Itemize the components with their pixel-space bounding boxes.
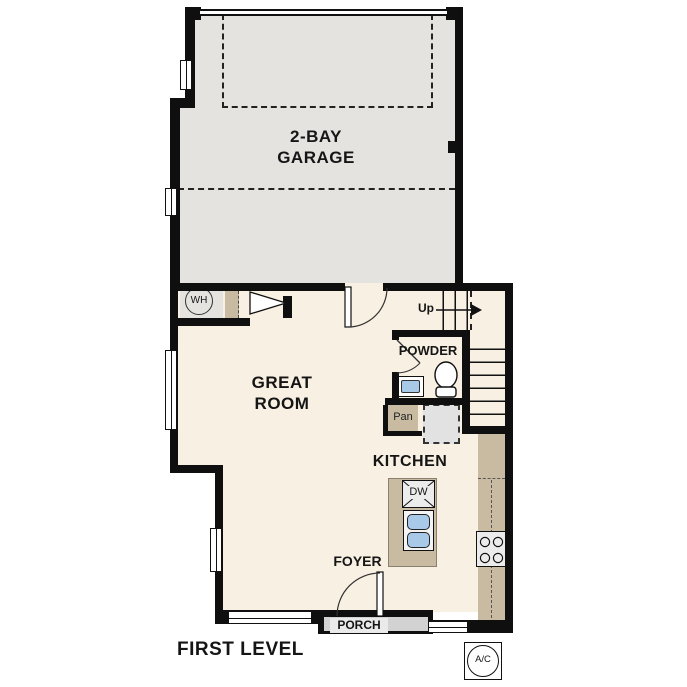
garage-doorway-floor <box>345 283 383 291</box>
wall-closet-bottom <box>170 318 250 326</box>
island-sink-bowl-1 <box>407 514 430 530</box>
water-heater-label: WH <box>185 295 213 307</box>
wall-divider-right <box>383 283 513 291</box>
pantry-label: Pan <box>388 411 418 424</box>
foyer-label: FOYER <box>320 553 395 570</box>
page-title: FIRST LEVEL <box>177 638 397 661</box>
powder-sink-basin <box>401 380 420 393</box>
garage-label: 2-BAY GARAGE <box>246 127 386 168</box>
garage-dashed-line <box>178 188 455 190</box>
stairs-dashed-line <box>470 291 472 330</box>
stairs-up-label: Up <box>414 301 438 316</box>
wall-powder-bottom <box>385 398 470 405</box>
great-room-label-line2: ROOM <box>222 394 342 415</box>
powder-label: POWDER <box>392 343 464 359</box>
great-room-label-line1: GREAT <box>222 373 342 394</box>
kitchen-foyer-floor <box>223 465 505 612</box>
wall-pantry-bottom <box>383 431 422 436</box>
wall-garage-left-upper <box>185 7 195 108</box>
garage-label-line2: GARAGE <box>246 148 386 169</box>
kitchen-label: KITCHEN <box>360 452 460 472</box>
great-room-label: GREAT ROOM <box>222 373 342 414</box>
wall-right <box>505 283 513 633</box>
wall-garage-right-nub <box>448 141 455 153</box>
garage-label-line1: 2-BAY <box>246 127 386 148</box>
refrigerator-space <box>423 404 460 444</box>
window-left-lower <box>210 528 222 572</box>
wall-divider-left <box>170 283 345 291</box>
wall-powder-top <box>392 330 470 337</box>
stove <box>476 531 506 567</box>
counter-dashed-horizontal <box>478 478 505 479</box>
window-garage-mid <box>165 188 177 216</box>
water-heater-platform <box>225 291 239 318</box>
wall-powder-left-upper <box>392 330 399 340</box>
island-sink-bowl-2 <box>407 532 430 548</box>
garage-bay-dashed-outline <box>222 14 433 108</box>
floor-plan: WH Up Pan DW PORCH <box>0 0 687 687</box>
window-garage-upper <box>180 60 192 90</box>
dishwasher-label: DW <box>406 486 431 499</box>
garage-door <box>200 9 447 16</box>
stairs-down-treads <box>470 337 505 427</box>
window-great-room <box>165 350 177 430</box>
wall-garage-right <box>455 7 463 291</box>
wall-stairs-bottom <box>462 426 513 434</box>
ac-unit-label: A/C <box>464 654 502 666</box>
window-bottom-left <box>228 611 312 624</box>
wall-closet-nub <box>283 296 292 318</box>
porch-label: PORCH <box>330 618 388 633</box>
window-bottom-right <box>428 621 468 633</box>
